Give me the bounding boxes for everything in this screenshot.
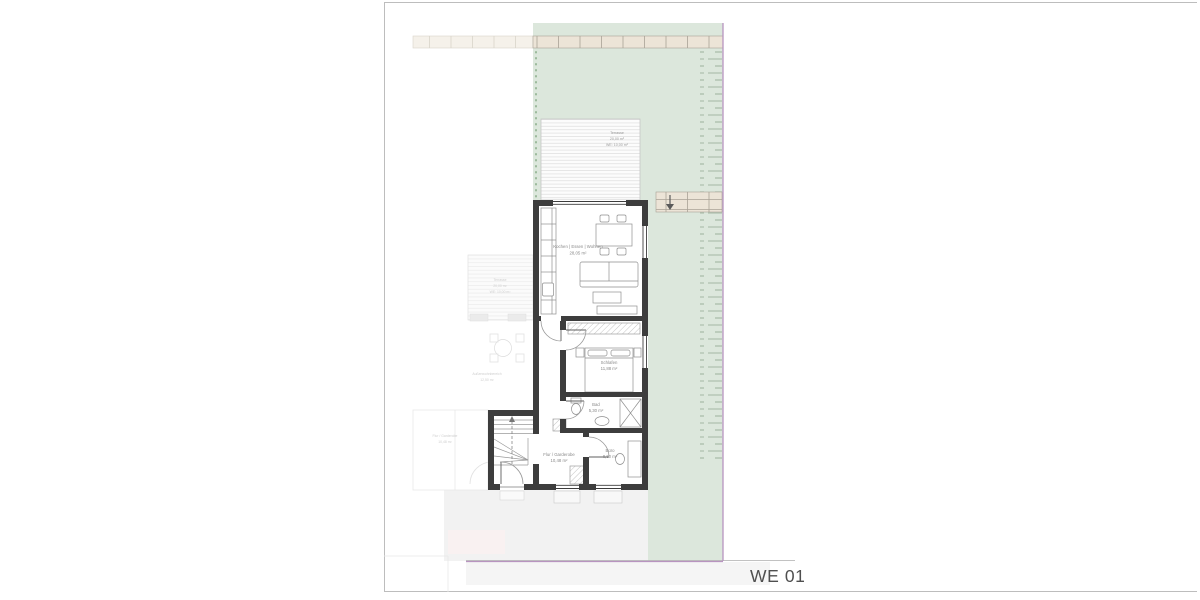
neighbor-chair (490, 354, 498, 362)
paving-band (413, 36, 723, 48)
toilet-cistern (571, 398, 581, 403)
hall-label: Flur / Garderobe (543, 452, 575, 457)
neighbor-outdoor-area: 12,50 m² (480, 378, 494, 382)
terrace-label: Terrasse (610, 131, 624, 135)
neighbor-terrace-share: WE: 10,00 m² (490, 290, 512, 294)
floor-plan-sheet: Terrasse 20,00 m² WE: 10,00 m² Terrasse … (0, 0, 1200, 600)
living-room-label: Kochen | Essen | Wohnen (553, 244, 603, 249)
dining-chair (617, 215, 626, 222)
terrace-deck (541, 119, 640, 200)
office-area: 8,60 m² (603, 454, 618, 459)
floor-plan-drawing: Terrasse 20,00 m² WE: 10,00 m² Terrasse … (0, 0, 1200, 600)
nightstand (576, 348, 584, 357)
neighbor-chair (516, 334, 524, 342)
neighbor-chair (490, 334, 498, 342)
wardrobe (568, 323, 640, 334)
parking-pad (448, 530, 505, 554)
sideboard (597, 306, 637, 314)
neighbor-hall-label: Flur / Garderobe (433, 434, 458, 438)
coffee-table (593, 292, 621, 303)
nightstand (634, 348, 641, 357)
bath-label: Bad (592, 402, 600, 407)
washbasin (595, 417, 609, 426)
sidewalk-strip (466, 562, 770, 585)
office-label: Büro (605, 448, 615, 453)
kitchen-sink (543, 283, 554, 296)
paving-garden (533, 36, 723, 48)
neighbor-room-outline (413, 410, 488, 490)
unit-label: WE 01 (750, 566, 806, 586)
gate-paving (656, 192, 722, 212)
bedroom-area: 11,88 m² (601, 366, 618, 371)
neighbor-terrace-label: Terrasse (493, 278, 506, 282)
neighbor-outdoor-label: Außenwohnbereich (472, 372, 501, 376)
garden-gate (656, 192, 722, 212)
shoe-cabinet (570, 466, 584, 484)
entrance-step (500, 491, 524, 500)
neighbor-step (470, 314, 488, 321)
hall-area: 10,48 m² (551, 458, 569, 463)
pillow (588, 350, 607, 356)
window-sill (554, 491, 580, 503)
dining-chair (600, 215, 609, 222)
dining-chair (617, 248, 626, 255)
terrace-area: 20,00 m² (610, 137, 625, 141)
bath-area: 5,30 m² (589, 408, 604, 413)
dining-chair (600, 248, 609, 255)
desk (628, 441, 641, 477)
dining-table (596, 224, 632, 246)
bedroom-label: Schlafen (601, 360, 618, 365)
window-sill (594, 491, 622, 503)
paving-neighbor (413, 36, 533, 48)
terrace: Terrasse 20,00 m² WE: 10,00 m² (541, 119, 640, 200)
neighbor-chair (516, 354, 524, 362)
neighbor-hall-area: 10,48 m² (438, 440, 452, 444)
pillow (611, 350, 630, 356)
living-room-area: 28,05 m² (570, 251, 588, 256)
terrace-share: WE: 10,00 m² (606, 143, 629, 147)
neighbor-step (508, 314, 526, 321)
neighbor-terrace-area: 20,00 m² (493, 284, 507, 288)
hedge-row (700, 50, 722, 460)
